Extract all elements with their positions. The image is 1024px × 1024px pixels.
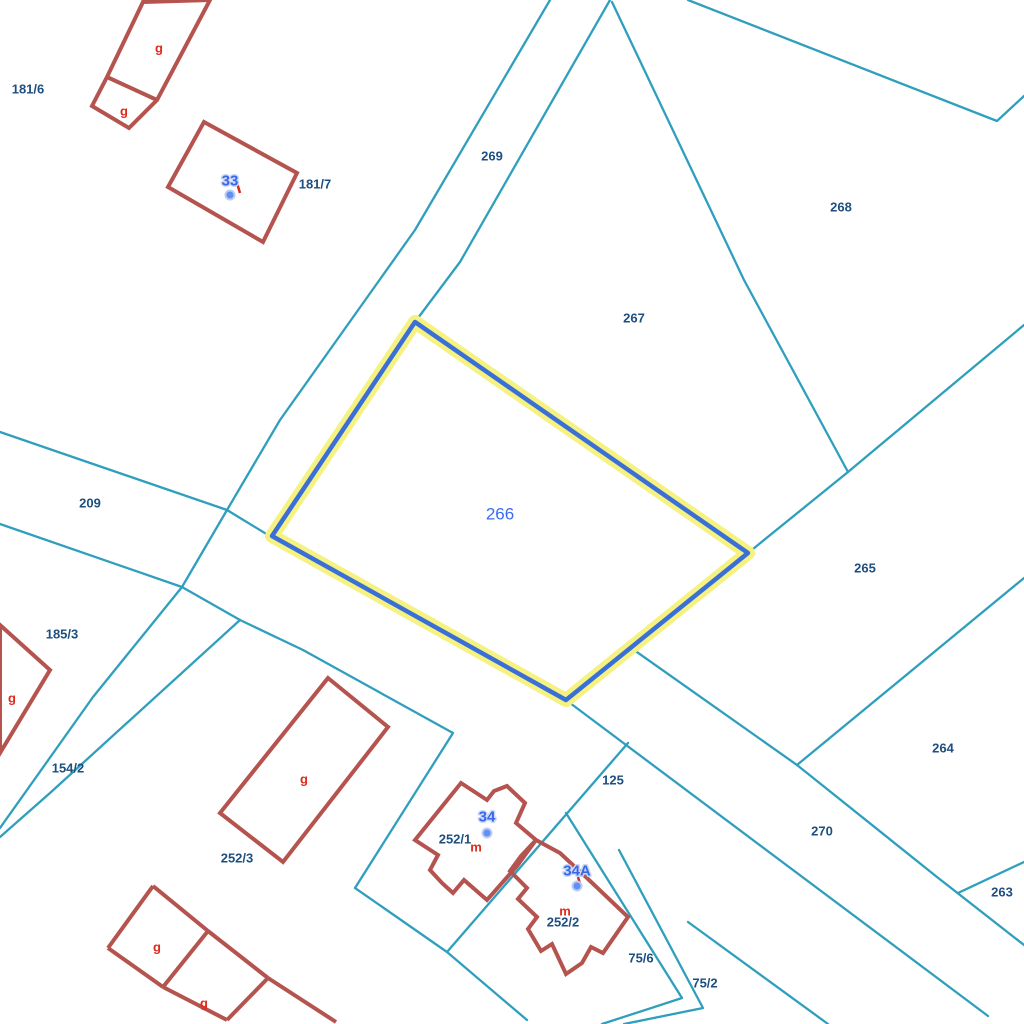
building-wall bbox=[153, 886, 208, 931]
boundary-line bbox=[634, 650, 797, 765]
map-viewport[interactable]: 181/6181/7269268267209265185/3154/2252/3… bbox=[0, 0, 1024, 1024]
parcel-label-181-6: 181/6 bbox=[12, 82, 45, 97]
building-label-g: g bbox=[153, 940, 161, 955]
building-label-g: g bbox=[155, 41, 163, 56]
parcel-label-185-3: 185/3 bbox=[46, 627, 79, 642]
boundary-line bbox=[619, 850, 703, 1024]
building-wall bbox=[208, 931, 268, 978]
map-canvas[interactable]: 181/6181/7269268267209265185/3154/2252/3… bbox=[0, 0, 1024, 1024]
boundary-line bbox=[688, 0, 1024, 121]
parcel-label-125: 125 bbox=[602, 773, 624, 788]
parcel-label-209: 209 bbox=[79, 496, 101, 511]
boundary-line bbox=[566, 700, 988, 1016]
building-wall bbox=[107, 77, 157, 100]
building-wall bbox=[163, 931, 208, 987]
house-number-dot bbox=[483, 829, 492, 838]
parcel-label-181-7: 181/7 bbox=[299, 177, 332, 192]
building-outline bbox=[92, 0, 210, 128]
boundary-line bbox=[566, 813, 682, 1024]
boundary-line bbox=[0, 0, 550, 828]
boundary-line bbox=[415, 0, 610, 322]
parcel-label-263: 263 bbox=[991, 885, 1013, 900]
building-label-g: g bbox=[8, 691, 16, 706]
boundary-line bbox=[0, 432, 268, 535]
building-outline bbox=[220, 678, 388, 862]
building-wall bbox=[268, 978, 336, 1022]
building-wall bbox=[108, 886, 153, 948]
house-number-34A: 34A bbox=[563, 863, 591, 880]
building-label-g: g bbox=[300, 772, 308, 787]
parcel-label-269: 269 bbox=[481, 149, 503, 164]
house-number-34: 34 bbox=[479, 809, 496, 826]
building-label-m: m bbox=[559, 904, 571, 919]
selected-parcel-label: 266 bbox=[486, 505, 514, 524]
parcel-label-252-1: 252/1 bbox=[439, 832, 472, 847]
house-number-dot bbox=[226, 191, 235, 200]
boundary-line bbox=[688, 922, 828, 1024]
building-wall bbox=[227, 978, 268, 1020]
parcel-label-264: 264 bbox=[932, 741, 954, 756]
parcel-label-75-2: 75/2 bbox=[692, 976, 717, 991]
parcel-label-154-2: 154/2 bbox=[52, 761, 85, 776]
parcel-label-270: 270 bbox=[811, 824, 833, 839]
building-outline bbox=[0, 625, 50, 753]
parcel-label-267: 267 bbox=[623, 311, 645, 326]
house-number-dot bbox=[573, 882, 582, 891]
boundary-line bbox=[612, 2, 848, 472]
parcel-label-75-6: 75/6 bbox=[628, 951, 653, 966]
parcel-label-265: 265 bbox=[854, 561, 876, 576]
parcel-label-268: 268 bbox=[830, 200, 852, 215]
building-label-m: m bbox=[470, 840, 482, 855]
building-label-g: g bbox=[120, 104, 128, 119]
building-label-g: g bbox=[200, 996, 208, 1011]
boundary-line bbox=[0, 620, 240, 837]
house-number-33: 33 bbox=[222, 173, 239, 190]
parcel-label-252-3: 252/3 bbox=[221, 851, 254, 866]
boundary-line bbox=[748, 325, 1024, 553]
building-wall bbox=[163, 987, 227, 1020]
boundary-line bbox=[797, 578, 1024, 945]
